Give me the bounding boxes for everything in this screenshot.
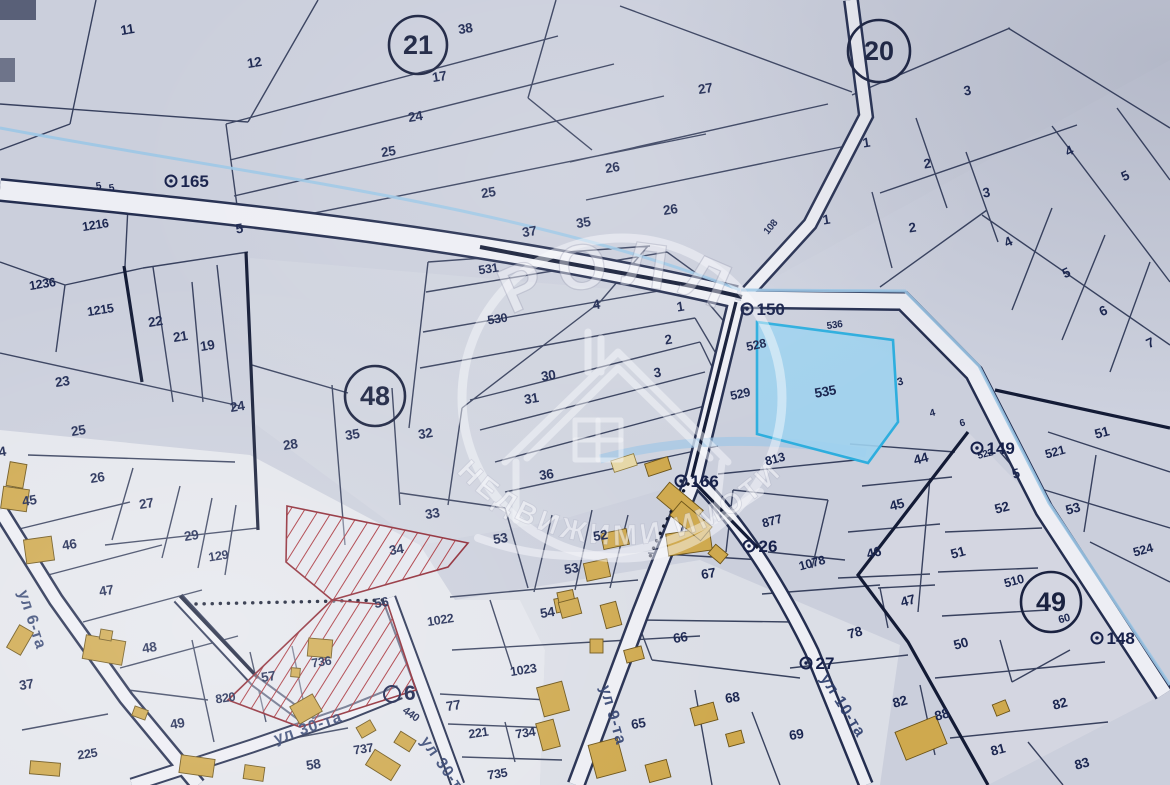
parcel-label: 529 (729, 385, 752, 403)
parcel-label: 53 (492, 530, 509, 547)
parcel-label: 21 (172, 328, 189, 345)
screen-edge-artifact (0, 58, 15, 82)
survey-point-dot (804, 661, 807, 664)
parcel-label: 69 (788, 726, 805, 743)
parcel-label: 53 (1064, 499, 1083, 517)
survey-point-dot (1095, 636, 1098, 639)
parcel-label: 2 (923, 156, 932, 172)
parcel-label: 26 (604, 159, 621, 176)
building (99, 629, 113, 641)
parcel-label: 25 (380, 143, 397, 160)
quarter-number: 49 (1036, 587, 1066, 617)
parcel-label: 30 (540, 367, 557, 384)
parcel-label: 35 (575, 214, 592, 231)
parcel-label: 24 (229, 398, 246, 415)
parcel-label: 52 (592, 527, 609, 544)
parcel-label: 1215 (86, 301, 115, 319)
building (590, 639, 603, 653)
survey-point-label: 27 (816, 654, 835, 673)
parcel-label: 27 (138, 495, 155, 512)
parcel-label: 51 (1093, 423, 1112, 441)
survey-point-dot (745, 307, 748, 310)
parcel-label: 37 (18, 676, 35, 693)
parcel-label: 813 (764, 450, 787, 469)
parcel-label: 5 (108, 183, 116, 195)
parcel-label: 23 (54, 373, 71, 390)
parcel-label: 24 (407, 108, 424, 125)
parcel-label: 25 (70, 422, 87, 439)
parcel-label: 1 (862, 134, 872, 150)
parcel-label: 47 (98, 582, 115, 599)
parcel-label: 57 (260, 668, 277, 685)
survey-point-label: 149 (987, 439, 1015, 458)
parcel-label: 1 (822, 211, 832, 227)
parcel-label: 29 (183, 527, 200, 544)
parcel-label: 27 (697, 80, 714, 97)
parcel-label: 67 (700, 565, 717, 582)
parcel-label: 6 (958, 417, 967, 429)
survey-point-label: 150 (757, 300, 785, 319)
parcel-label: 19 (199, 337, 216, 354)
cadastral-map-screenshot: РОЛЛ НЕДВИЖИМИ ИМОТИ 1112381724252537352… (0, 0, 1170, 785)
building (6, 462, 27, 489)
parcel-label: 4 (928, 407, 937, 419)
parcel-label: 77 (445, 697, 462, 714)
parcel-label: 1216 (81, 216, 110, 234)
parcel-label: 45 (888, 495, 907, 513)
survey-point-label: 165 (181, 172, 209, 191)
quarter-number: 20 (864, 36, 894, 66)
parcel-label: 82 (891, 693, 909, 711)
survey-point-label: 166 (691, 472, 719, 491)
building (29, 761, 60, 777)
parcel-label: 32 (417, 425, 434, 442)
survey-point-dot (679, 479, 682, 482)
building (291, 668, 301, 678)
parcel-label: 3 (963, 82, 973, 98)
parcel-label: 524 (1132, 541, 1155, 560)
survey-point-dot (975, 446, 978, 449)
parcel-label: 108 (762, 217, 781, 237)
parcel-label: 877 (761, 512, 784, 531)
parcel-label: 12 (246, 54, 263, 71)
parcel-label: 22 (147, 313, 164, 330)
building (23, 536, 54, 564)
survey-point-label: 148 (1107, 629, 1135, 648)
parcel-label: 521 (1044, 443, 1067, 462)
parcel-label: 25 (480, 184, 497, 201)
survey-point-label: 6 (404, 682, 416, 705)
parcel-label: 536 (826, 319, 844, 332)
parcel-label: 5 (95, 181, 103, 193)
building (243, 765, 265, 782)
screen-edge-artifact (0, 0, 36, 20)
parcel-label: 44 (912, 449, 931, 467)
parcel-label: 83 (1073, 754, 1092, 772)
survey-point-label: 26 (759, 537, 778, 556)
parcel-label: 53 (563, 560, 580, 577)
quarter-number: 21 (403, 30, 433, 60)
parcel-label: 1236 (28, 275, 57, 293)
parcel-label: 49 (169, 715, 186, 732)
parcel-label: 26 (662, 201, 679, 218)
survey-point-dot (747, 544, 750, 547)
quarter-number: 48 (360, 381, 390, 411)
parcel-label: 3 (896, 376, 905, 389)
parcel-label: 37 (521, 223, 538, 240)
parcel-label: 38 (457, 20, 474, 37)
survey-point-dot (169, 179, 172, 182)
cadastral-map-canvas: РОЛЛ НЕДВИЖИМИ ИМОТИ 1112381724252537352… (0, 0, 1170, 785)
parcel-label: 11 (119, 21, 136, 38)
